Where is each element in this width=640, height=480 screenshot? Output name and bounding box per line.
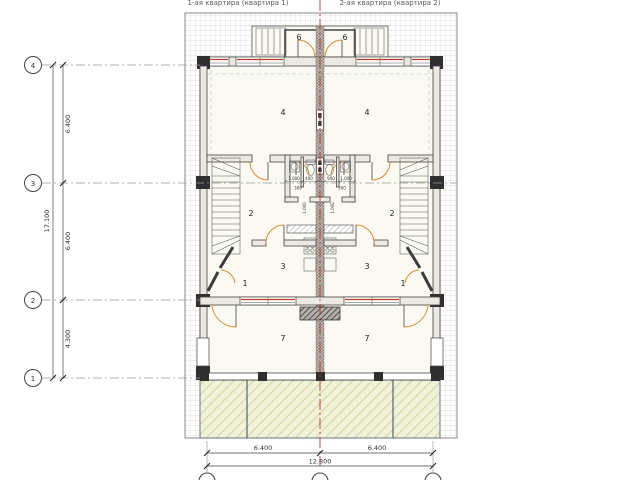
- pilaster-w3: [196, 176, 210, 189]
- room-label-1-left: 1: [242, 279, 247, 288]
- dim-left-6400-b: 6.400: [64, 232, 72, 251]
- south-window-right: [344, 297, 400, 305]
- room-label-1-right: 1: [400, 279, 405, 288]
- axis-bubble-bottom-c: [425, 473, 441, 480]
- dim-int-w3: 900: [327, 176, 335, 181]
- pilaster-e3: [430, 176, 444, 189]
- room-label-living-left: 4: [280, 108, 285, 117]
- dim-bottom-6400-left: 6.400: [254, 444, 273, 452]
- apartment-titles: 1-ая квартира (квартира 1) 2-ая квартира…: [188, 0, 441, 7]
- room-label-porch-right: 6: [342, 33, 347, 42]
- axis-bubble-bottom-a: [199, 473, 215, 480]
- dim-int-s1: 300: [294, 186, 302, 191]
- left-dimensions: 6.400 6.400 4.300 17.100: [43, 62, 72, 381]
- dim-int-s2: 300: [338, 186, 346, 191]
- dim-left-4300: 4.300: [64, 330, 72, 349]
- counter-right: [324, 225, 353, 233]
- veranda-window-west: [197, 338, 209, 366]
- floor-plan-svg: 6.400 6.400 4.300 17.100 4 3 2 1 6.400 6…: [0, 0, 640, 480]
- floor-plan-canvas: 6.400 6.400 4.300 17.100 4 3 2 1 6.400 6…: [0, 0, 640, 480]
- dim-left-6400-a: 6.400: [64, 115, 72, 134]
- room-label-hall-left: 2: [248, 209, 253, 218]
- east-wall: [433, 66, 440, 373]
- room-label-3-right: 3: [364, 262, 369, 271]
- south-window-left: [240, 297, 296, 305]
- dim-int-w2: 400: [305, 176, 313, 181]
- north-window-l2: [236, 57, 284, 66]
- counter-left: [287, 225, 316, 233]
- dim-int-w1: 1.000: [288, 176, 300, 181]
- room-label-veranda-right: 7: [364, 334, 369, 343]
- dim-int-v1: 1.000: [302, 202, 307, 214]
- west-wall: [200, 66, 207, 373]
- axis-bubbles-left: 4 3 2 1: [25, 57, 42, 387]
- axis-bubble-1: 1: [31, 375, 35, 383]
- apartment2-title: 2-ая квартира (квартира 2): [340, 0, 441, 7]
- dim-int-v2: 1.000: [330, 202, 335, 214]
- axis-bubble-4: 4: [31, 62, 36, 70]
- veranda-window-east: [431, 338, 443, 366]
- room-label-veranda-left: 7: [280, 334, 285, 343]
- north-window-r2: [356, 57, 404, 66]
- axis-bubble-2: 2: [31, 297, 35, 305]
- dim-left-total: 17.100: [43, 210, 51, 233]
- apartment1-title: 1-ая квартира (квартира 1): [188, 0, 289, 7]
- room-label-living-right: 4: [364, 108, 369, 117]
- dim-bottom-total: 12.800: [309, 458, 332, 466]
- room-label-hall-right: 2: [389, 209, 394, 218]
- axis-bubble-bottom-b: [312, 473, 328, 480]
- room-label-3-left: 3: [280, 262, 285, 271]
- dim-int-w4: 1.000: [340, 176, 352, 181]
- dim-bottom-6400-right: 6.400: [368, 444, 387, 452]
- room-label-porch-left: 6: [296, 33, 301, 42]
- axis-bubble-3: 3: [31, 180, 35, 188]
